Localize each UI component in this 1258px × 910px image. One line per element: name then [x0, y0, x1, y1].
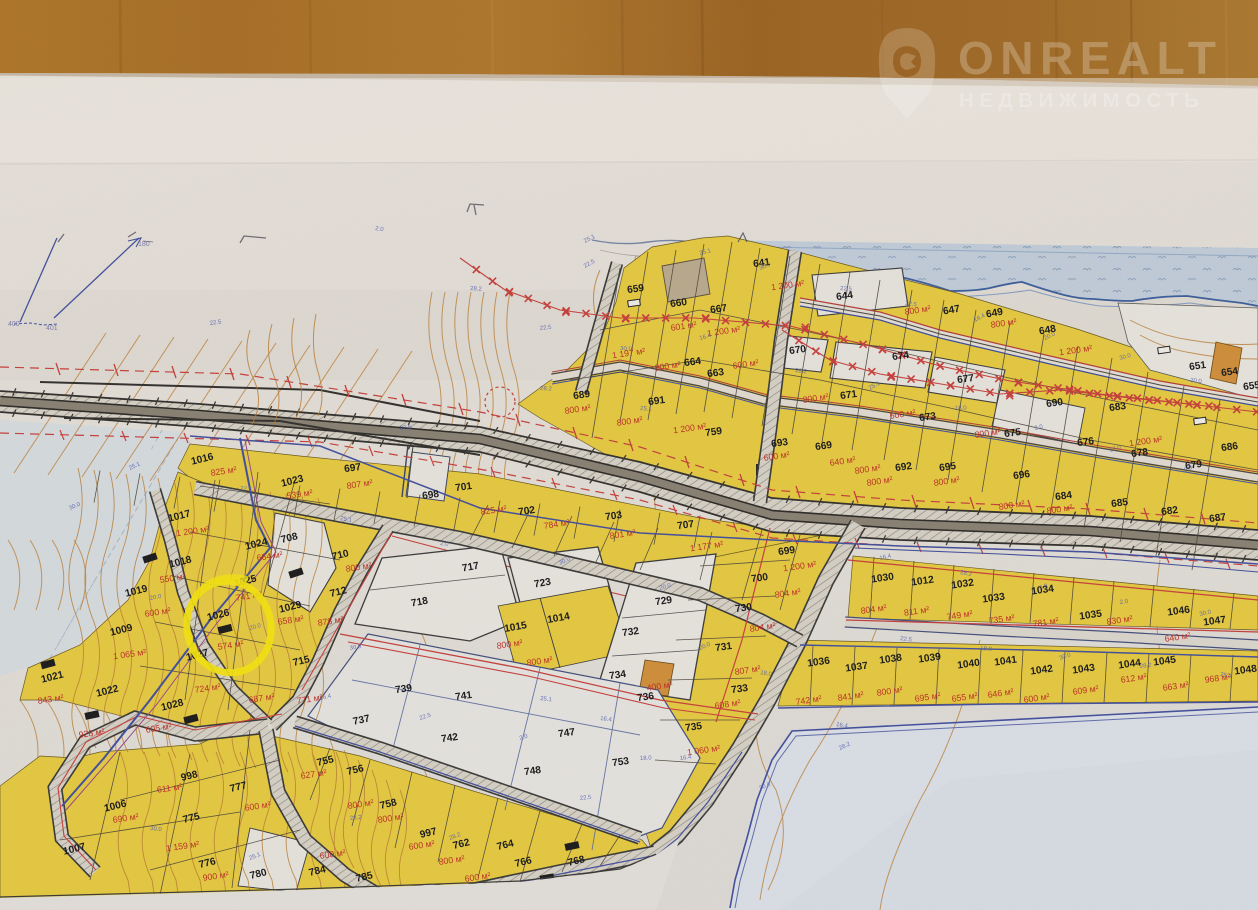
svg-text:НЕДВИЖИМОСТЬ: НЕДВИЖИМОСТЬ [959, 89, 1204, 112]
svg-text:ONREALT: ONREALT [958, 32, 1222, 84]
